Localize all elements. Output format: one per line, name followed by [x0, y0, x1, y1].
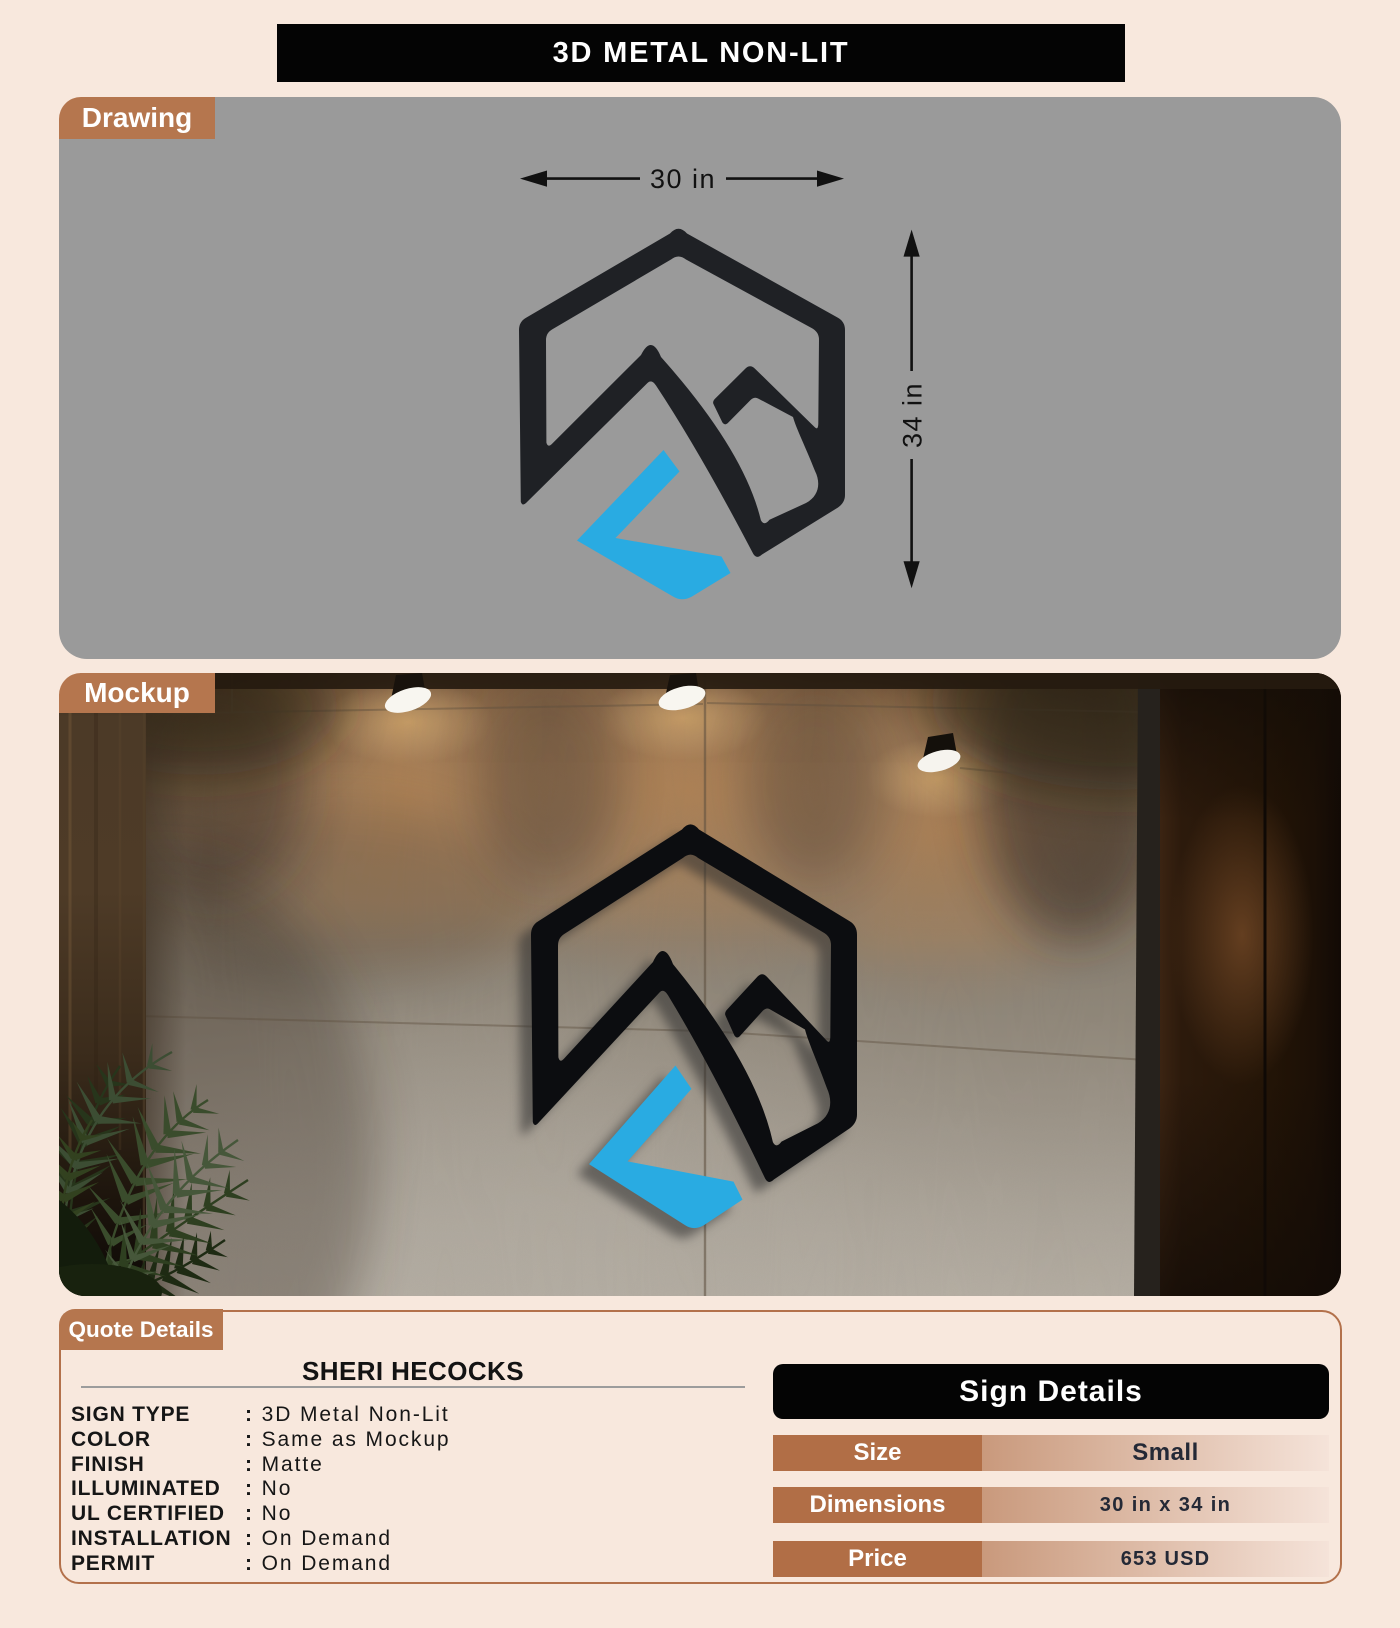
svg-text:30 in: 30 in: [650, 164, 716, 194]
svg-text:34 in: 34 in: [898, 382, 928, 448]
